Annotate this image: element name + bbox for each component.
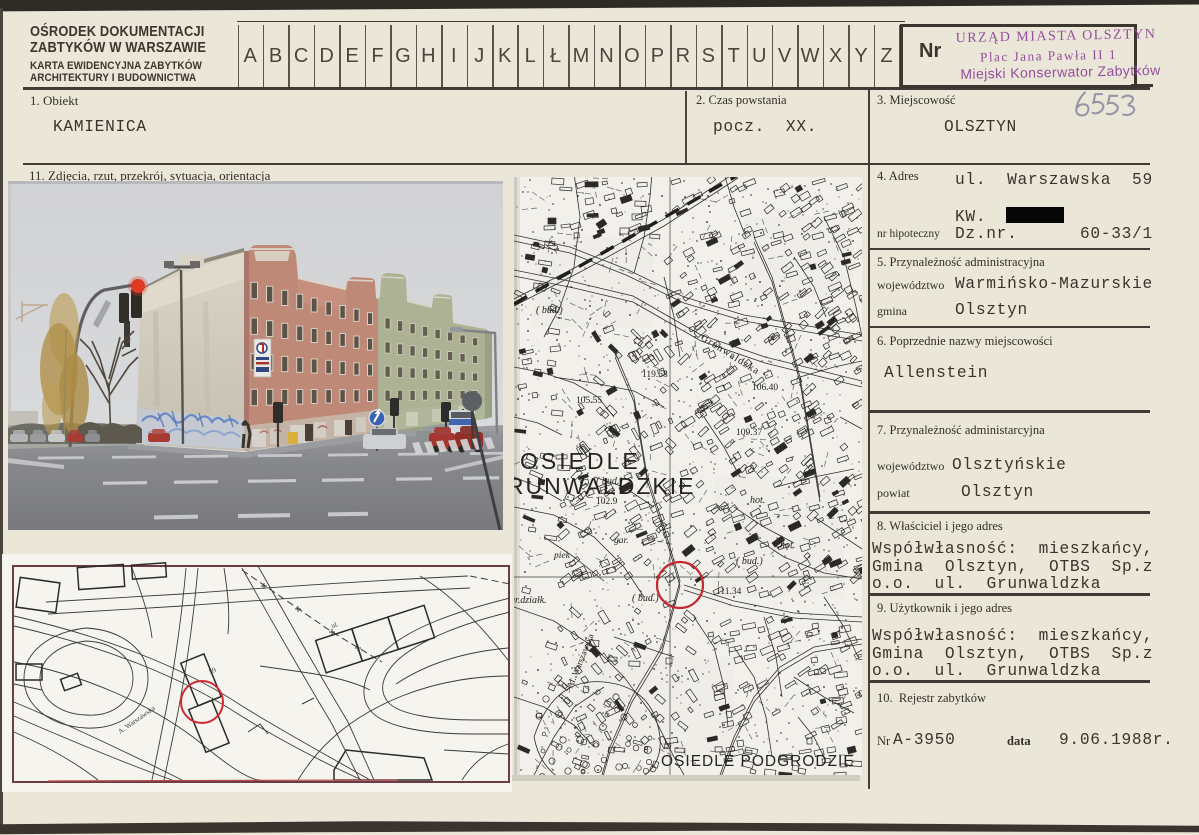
svg-text:( bud.): ( bud.) [596,476,623,487]
svg-text:119.58: 119.58 [642,370,668,380]
svg-text:106.40: 106.40 [752,383,778,393]
svg-text:piek: piek [553,551,571,561]
svg-text:OSIEDLE PODGRODZIE: OSIEDLE PODGRODZIE [661,753,855,770]
svg-text:( bud.): ( bud.) [536,305,563,316]
svg-text:gr.działk.: gr.działk. [514,595,547,606]
svg-text:gar.: gar. [614,536,629,546]
svg-text:109.37: 109.37 [736,428,762,438]
svg-text:111.34: 111.34 [716,587,742,597]
svg-text:( bud.): ( bud.) [632,593,659,604]
svg-text:hot.: hot. [780,540,795,551]
svg-text:( bud.): ( bud.) [736,556,763,567]
svg-text:hot.: hot. [750,495,765,506]
svg-text:OSIEDLE: OSIEDLE [520,448,641,474]
svg-text:105.55: 105.55 [576,396,602,406]
svg-text:102.9: 102.9 [596,497,618,507]
